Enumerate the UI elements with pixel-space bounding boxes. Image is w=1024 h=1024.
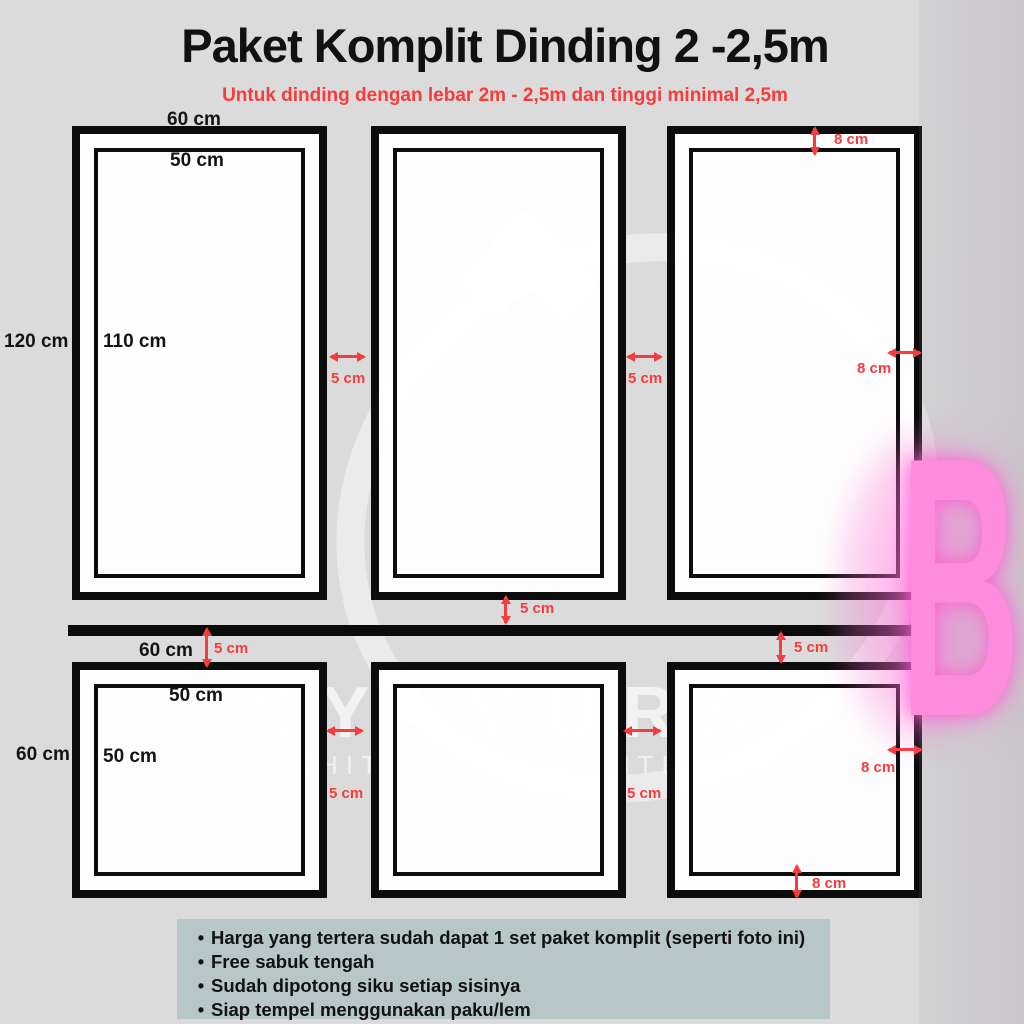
watermark-corner-letter: B [900, 440, 1020, 736]
v-arrow-icon [795, 866, 798, 897]
dim-label-top-outer-height: 120 cm [4, 331, 68, 353]
page-subtitle: Untuk dinding dengan lebar 2m - 2,5m dan… [0, 85, 1010, 107]
list-item: • Harga yang tertera sudah dapat 1 set p… [191, 926, 818, 950]
note-text: Free sabuk tengah [211, 950, 374, 974]
dim-label-belt-gap-below-right: 5 cm [794, 639, 828, 656]
h-arrow-icon [328, 729, 362, 732]
bullet-icon: • [191, 998, 211, 1022]
bullet-icon: • [191, 926, 211, 950]
dim-label-top-gap-right: 5 cm [628, 370, 662, 387]
dim-label-bottom-outer-height: 60 cm [16, 744, 70, 766]
v-arrow-icon [504, 597, 507, 623]
dim-label-top-inner-height: 110 cm [103, 331, 166, 353]
frame-bottom-right-inner [689, 684, 900, 876]
v-arrow-icon [779, 633, 782, 662]
v-arrow-icon [205, 629, 208, 666]
h-arrow-icon [331, 355, 364, 358]
notes-box: • Harga yang tertera sudah dapat 1 set p… [177, 919, 830, 1019]
frame-top-left [72, 126, 327, 600]
bullet-icon: • [191, 974, 211, 998]
dim-label-bottom-inner-width: 50 cm [169, 685, 223, 707]
h-arrow-icon [628, 355, 661, 358]
list-item: • Free sabuk tengah [191, 950, 818, 974]
frame-bottom-middle [371, 662, 626, 898]
dim-label-bottom-gap-right: 5 cm [627, 785, 661, 802]
dim-label-belt-gap-above: 5 cm [520, 600, 554, 617]
frame-bottom-right [667, 662, 922, 898]
frame-bottom-left-inner [94, 684, 305, 876]
list-item: • Siap tempel menggunakan paku/lem [191, 998, 818, 1022]
frame-top-left-inner [94, 148, 305, 578]
dim-label-bottom-right-margin-side: 8 cm [861, 759, 895, 776]
list-item: • Sudah dipotong siku setiap sisinya [191, 974, 818, 998]
poster-canvas: SYAMURA ARCHITECTURE & INTERIOR Paket Ko… [0, 0, 1024, 1024]
frame-top-middle-inner [393, 148, 604, 578]
dim-label-bottom-outer-width: 60 cm [139, 640, 193, 662]
dim-label-top-outer-width: 60 cm [167, 109, 221, 131]
dim-label-bottom-right-margin-bottom: 8 cm [812, 875, 846, 892]
note-text: Siap tempel menggunakan paku/lem [211, 998, 531, 1022]
dim-label-top-right-margin-side: 8 cm [857, 360, 891, 377]
middle-belt-bar [68, 625, 928, 636]
v-arrow-icon [813, 128, 816, 154]
dim-label-top-right-margin-top: 8 cm [834, 131, 868, 148]
h-arrow-icon [625, 729, 660, 732]
note-text: Harga yang tertera sudah dapat 1 set pak… [211, 926, 805, 950]
dim-label-top-gap-left: 5 cm [331, 370, 365, 387]
frame-bottom-middle-inner [393, 684, 604, 876]
frame-top-middle [371, 126, 626, 600]
dim-label-top-inner-width: 50 cm [170, 150, 224, 172]
dim-label-bottom-gap-left: 5 cm [329, 785, 363, 802]
dim-label-bottom-inner-height: 50 cm [103, 746, 157, 768]
h-arrow-icon [889, 351, 920, 354]
page-title: Paket Komplit Dinding 2 -2,5m [0, 18, 1010, 73]
dim-label-belt-gap-below-left: 5 cm [214, 640, 248, 657]
note-text: Sudah dipotong siku setiap sisinya [211, 974, 520, 998]
bullet-icon: • [191, 950, 211, 974]
